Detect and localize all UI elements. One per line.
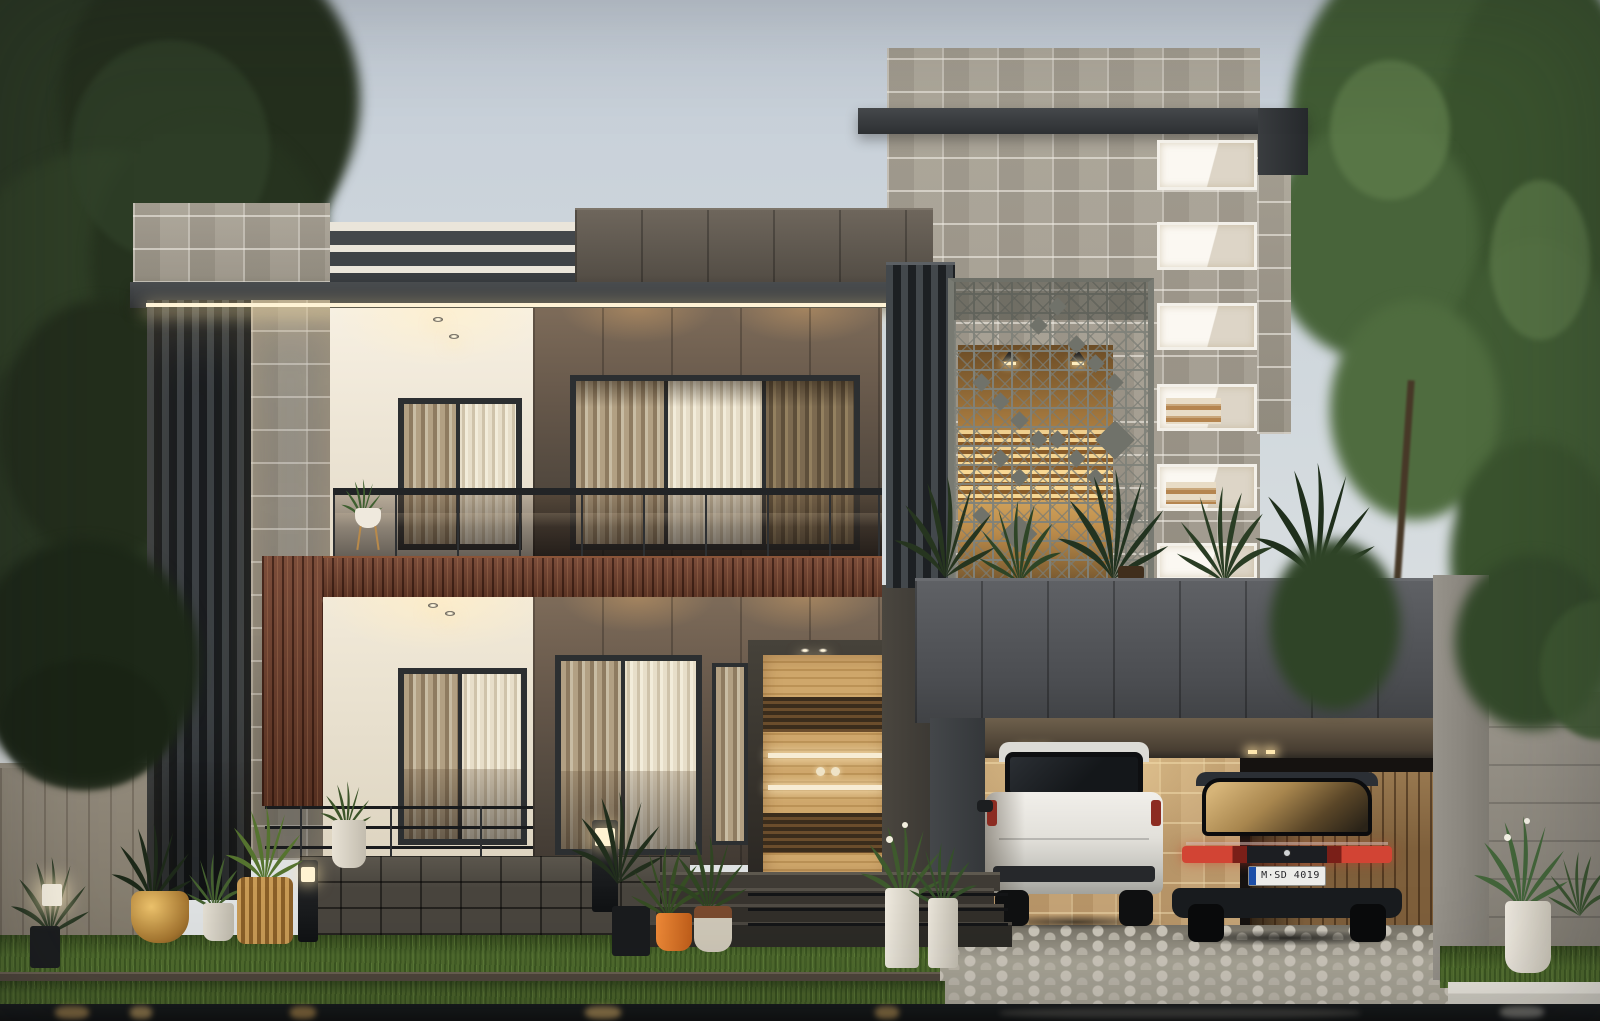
garden-plant (664, 830, 752, 914)
stair-window (1157, 384, 1257, 431)
recessed-downlight (445, 611, 455, 616)
planter-stone (694, 906, 732, 952)
sedan-black: M·SD 4019 (1172, 772, 1402, 948)
balustrade-post (705, 495, 707, 558)
sedan-badge (1283, 849, 1291, 857)
water-reflection (1000, 1008, 1360, 1018)
led-soffit-strip (146, 303, 904, 307)
timber-column (262, 556, 323, 806)
ground-porch-window (398, 668, 527, 845)
window-top-shadow (576, 381, 854, 407)
sedan-chrome-strip (1186, 842, 1388, 845)
tower-cap-drop (1258, 108, 1308, 175)
planter-white (203, 903, 234, 941)
door-soffit-light (818, 648, 828, 653)
carport-soffit-light (1266, 750, 1275, 754)
step-guardrail-bar (748, 923, 1008, 926)
balustrade-post (643, 495, 645, 558)
planter-white-cylinder (928, 898, 958, 968)
flower-dot (1524, 818, 1530, 824)
ivy-over-wall (0, 660, 170, 790)
planter-orange (656, 913, 692, 951)
sedan-wheel (1350, 904, 1386, 942)
tree-right-foliage (1490, 180, 1590, 340)
suv-tailgate-line (999, 838, 1149, 840)
garden-fronds (1545, 820, 1600, 945)
sedan-rear-window (1202, 778, 1372, 836)
license-plate: M·SD 4019 (1248, 866, 1326, 886)
water-reflection (55, 1006, 89, 1019)
water-reflection (290, 1006, 316, 1019)
garden-cube-light (42, 884, 62, 906)
planter-ribbed-gold (237, 877, 293, 944)
flower-dot (886, 836, 893, 843)
carport-soffit-light (1248, 750, 1257, 754)
door-slat-band (763, 697, 888, 732)
porch-guardrail-post (480, 806, 482, 862)
suv-mirror (977, 800, 993, 812)
balcony-balustrade-glass (333, 495, 882, 558)
water-reflection (1500, 1006, 1544, 1018)
license-plate-text: M·SD 4019 (1254, 871, 1320, 881)
water-reflection (130, 1006, 152, 1019)
license-plate-euroband (1249, 867, 1256, 885)
roof-stone-parapet (133, 203, 330, 283)
porch-ceiling-glow (330, 308, 533, 368)
balcony-balustrade-rail (333, 488, 882, 495)
stair-window (1157, 222, 1257, 270)
stair-window (1157, 140, 1257, 190)
recessed-downlight (428, 603, 438, 608)
lattice-top-band (954, 282, 1148, 320)
balustrade-post (829, 495, 831, 558)
water-strip (0, 1004, 1600, 1021)
balustrade-post (767, 495, 769, 558)
snake-plant (222, 798, 307, 888)
water-reflection (585, 1006, 621, 1019)
door-soffit-light (800, 648, 810, 653)
door-led-strip (768, 753, 883, 758)
suv-tail-light (1151, 800, 1161, 826)
balustrade-post (395, 495, 397, 558)
flower-dot (1504, 834, 1511, 841)
planter-black (30, 926, 60, 968)
stair-tower-edge (1257, 172, 1291, 434)
roof-rail-bar (330, 231, 575, 245)
recessed-downlight (449, 334, 459, 339)
staircase-steps (1166, 398, 1221, 424)
stair-window (1157, 303, 1257, 350)
tree-right-front-foliage (1270, 540, 1400, 710)
roof-panel-box (575, 208, 933, 284)
balustrade-post (581, 495, 583, 558)
flower-dot (902, 822, 908, 828)
glass-sheen (333, 513, 882, 527)
balustrade-post (519, 495, 521, 558)
planter-white-small (332, 820, 366, 868)
porch-guardrail-post (390, 806, 392, 862)
balustrade-post (878, 495, 880, 558)
door-handle (831, 767, 840, 776)
tower-cap-band (858, 108, 1308, 134)
sedan-wheel (1188, 904, 1224, 942)
door-sidelite (712, 663, 748, 845)
door-led-strip (768, 785, 883, 790)
roof-rail-bar (330, 252, 575, 266)
architectural-render: M·SD 4019 (0, 0, 1600, 1021)
suv-trim-strip (993, 866, 1155, 882)
door-handle (816, 767, 825, 776)
terrace-plant (1048, 462, 1178, 582)
recessed-downlight (433, 317, 443, 322)
water-reflection (875, 1006, 899, 1019)
balustrade-post (457, 495, 459, 558)
suv-wheel (1119, 890, 1153, 926)
sidelite-curtain (716, 667, 744, 841)
roof-rail-parapet (330, 222, 575, 283)
tree-right-foliage (1330, 60, 1450, 200)
